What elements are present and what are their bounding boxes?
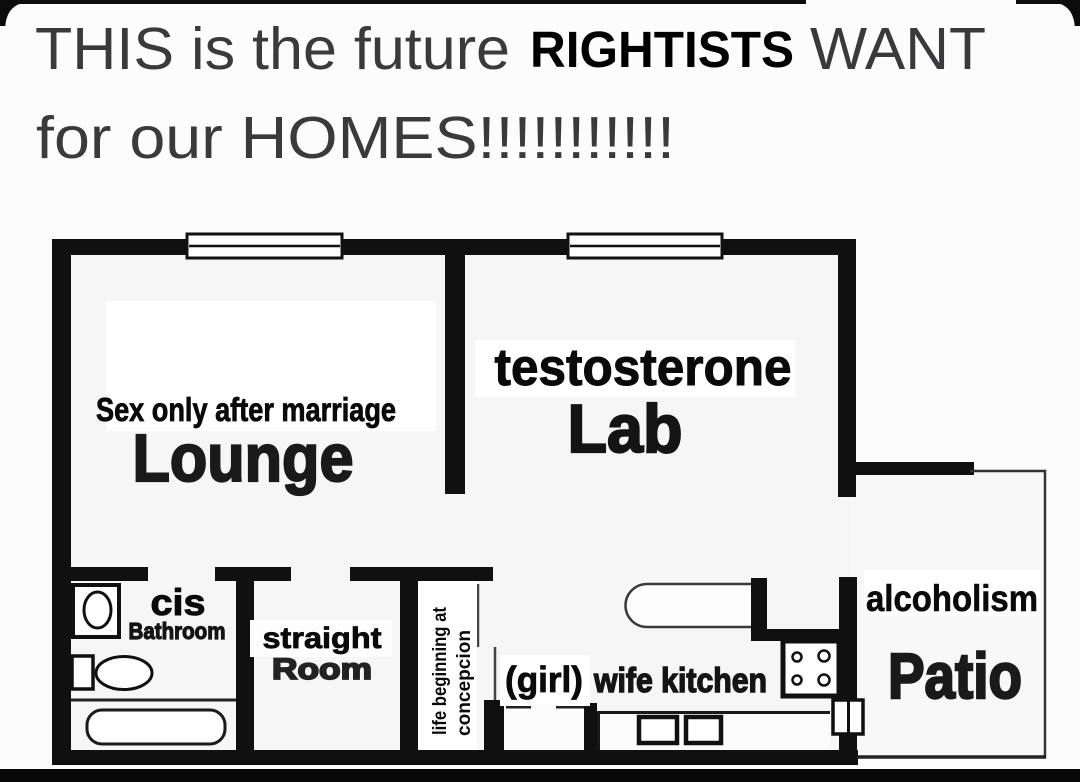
- svg-text:life beginning at: life beginning at: [430, 606, 451, 735]
- svg-text:for our HOMES!!!!!!!!!!!: for our HOMES!!!!!!!!!!!: [36, 105, 675, 171]
- svg-text:straight: straight: [263, 622, 382, 655]
- svg-text:THIS is the future: THIS is the future: [35, 16, 510, 82]
- svg-text:Room: Room: [272, 653, 372, 686]
- svg-text:Lounge: Lounge: [133, 421, 354, 496]
- svg-text:Lab: Lab: [568, 391, 683, 467]
- svg-text:wife kitchen: wife kitchen: [593, 662, 767, 700]
- svg-text:Patio: Patio: [888, 640, 1022, 712]
- svg-text:alcoholism: alcoholism: [866, 578, 1038, 619]
- svg-text:(girl): (girl): [505, 659, 583, 700]
- svg-text:RIGHTISTS: RIGHTISTS: [530, 21, 794, 78]
- svg-text:Bathroom: Bathroom: [129, 618, 226, 644]
- svg-text:cis: cis: [151, 582, 206, 623]
- svg-text:WANT: WANT: [810, 16, 986, 82]
- svg-text:testosterone: testosterone: [495, 339, 792, 397]
- svg-text:concepcion: concepcion: [454, 630, 475, 736]
